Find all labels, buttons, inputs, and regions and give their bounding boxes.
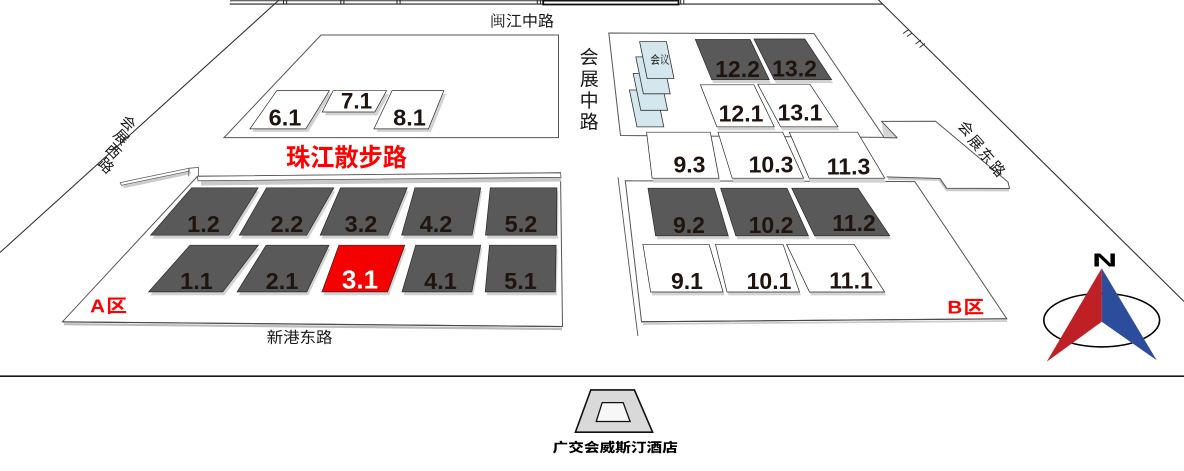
- svg-text:9.1: 9.1: [671, 268, 703, 294]
- svg-text:3.2: 3.2: [345, 211, 378, 237]
- svg-text:4.2: 4.2: [420, 211, 453, 237]
- svg-text:12.2: 12.2: [715, 56, 760, 82]
- svg-text:10.2: 10.2: [749, 212, 794, 238]
- svg-text:1.2: 1.2: [187, 211, 220, 237]
- svg-text:9.3: 9.3: [674, 152, 706, 178]
- svg-text:11.1: 11.1: [829, 268, 873, 294]
- svg-text:9.2: 9.2: [673, 212, 705, 238]
- svg-text:5.1: 5.1: [504, 268, 537, 294]
- svg-text:8.1: 8.1: [393, 105, 426, 131]
- svg-text:13.2: 13.2: [772, 56, 817, 82]
- svg-text:11.3: 11.3: [827, 154, 871, 180]
- svg-text:13.1: 13.1: [778, 100, 823, 126]
- svg-text:10.3: 10.3: [749, 152, 794, 178]
- svg-text:11.2: 11.2: [832, 210, 876, 236]
- svg-text:1.1: 1.1: [180, 268, 213, 294]
- svg-text:5.2: 5.2: [505, 211, 538, 237]
- svg-text:2.2: 2.2: [271, 211, 304, 237]
- svg-text:4.1: 4.1: [424, 268, 457, 294]
- svg-text:N: N: [1092, 250, 1117, 271]
- svg-text:6.1: 6.1: [269, 105, 302, 131]
- svg-text:3.1: 3.1: [342, 265, 378, 295]
- svg-text:12.1: 12.1: [719, 101, 764, 127]
- svg-text:10.1: 10.1: [747, 268, 792, 294]
- svg-text:2.1: 2.1: [266, 268, 299, 294]
- svg-text:7.1: 7.1: [341, 89, 372, 114]
